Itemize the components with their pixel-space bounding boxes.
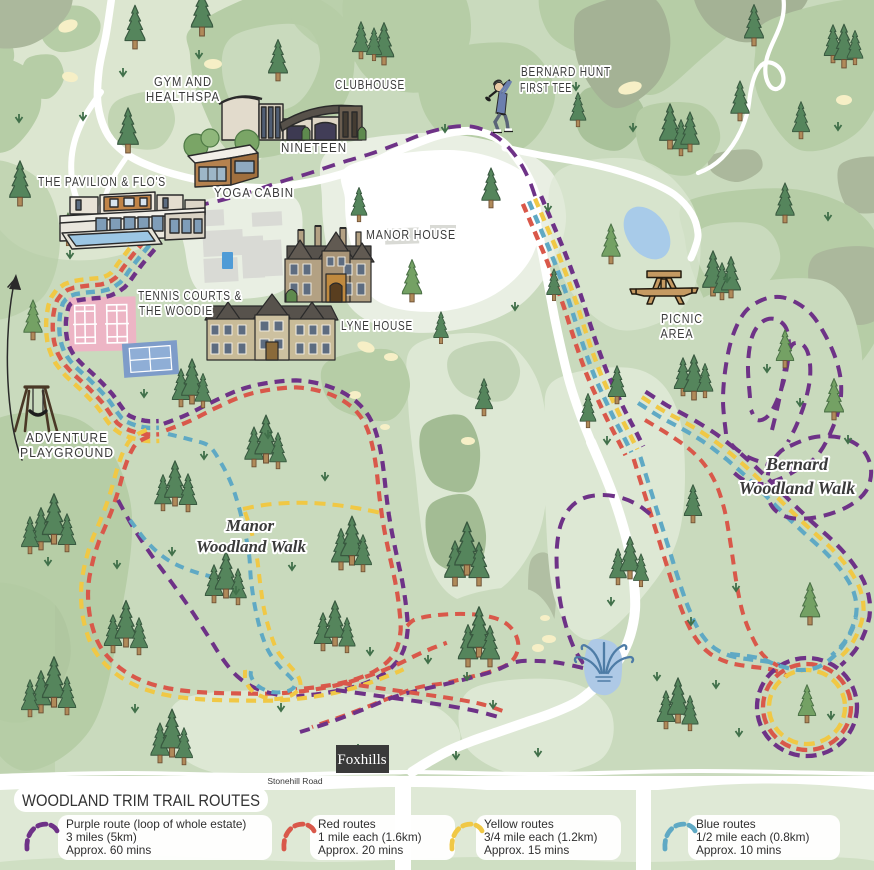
svg-text:Approx. 20 mins: Approx. 20 mins [318,843,403,857]
svg-text:3/4 mile each (1.2km): 3/4 mile each (1.2km) [484,830,597,844]
svg-text:Red routes: Red routes [318,817,376,831]
svg-text:CLUBHOUSE: CLUBHOUSE [335,78,405,92]
svg-text:Yellow routes: Yellow routes [484,817,554,831]
svg-text:Bernard: Bernard [765,454,829,474]
svg-text:Woodland Walk: Woodland Walk [739,478,856,498]
svg-text:Approx. 60 mins: Approx. 60 mins [66,843,151,857]
svg-text:Approx. 10 mins: Approx. 10 mins [696,843,781,857]
svg-text:NINETEEN: NINETEEN [281,141,347,155]
svg-text:Stonehill Road: Stonehill Road [267,776,323,786]
svg-text:PLAYGROUND: PLAYGROUND [20,446,114,460]
svg-text:GYM AND: GYM AND [154,75,212,89]
svg-text:BERNARD HUNT: BERNARD HUNT [521,65,611,79]
svg-text:1 mile each (1.6km): 1 mile each (1.6km) [318,830,422,844]
svg-text:THE PAVILION & FLO'S: THE PAVILION & FLO'S [38,175,166,189]
svg-text:YOGA CABIN: YOGA CABIN [214,186,294,200]
svg-text:Manor: Manor [225,516,275,535]
svg-text:LYNE HOUSE: LYNE HOUSE [341,319,413,333]
svg-text:Foxhills: Foxhills [337,752,386,768]
svg-text:AREA: AREA [661,327,694,341]
svg-text:Approx. 15 mins: Approx. 15 mins [484,843,569,857]
svg-text:TENNIS COURTS &: TENNIS COURTS & [138,289,242,303]
svg-text:PICNIC: PICNIC [661,312,703,326]
svg-text:THE WOODIE: THE WOODIE [139,304,213,318]
svg-text:1/2 mile each (0.8km): 1/2 mile each (0.8km) [696,830,809,844]
svg-text:Purple route (loop of whole es: Purple route (loop of whole estate) [66,817,246,831]
svg-text:3 miles (5km): 3 miles (5km) [66,830,137,844]
svg-text:ADVENTURE: ADVENTURE [26,431,108,445]
svg-text:Woodland Walk: Woodland Walk [196,537,307,556]
svg-text:FIRST TEE: FIRST TEE [520,81,572,95]
svg-text:HEALTHSPA: HEALTHSPA [146,90,220,104]
svg-text:MANOR HOUSE: MANOR HOUSE [366,228,456,242]
svg-text:Blue routes: Blue routes [696,817,756,831]
svg-text:WOODLAND TRIM TRAIL ROUTES: WOODLAND TRIM TRAIL ROUTES [22,791,260,810]
